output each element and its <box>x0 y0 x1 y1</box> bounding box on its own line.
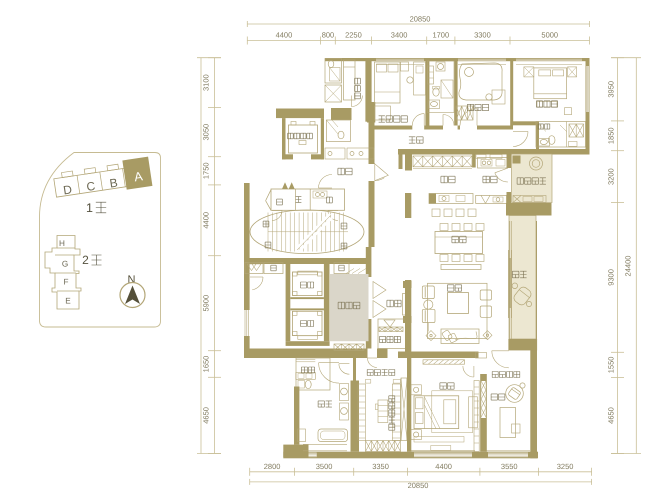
svg-text:9300: 9300 <box>607 269 616 286</box>
svg-text:F: F <box>63 278 68 287</box>
svg-text:3400: 3400 <box>391 31 408 40</box>
svg-text:4400: 4400 <box>435 462 452 471</box>
svg-text:800: 800 <box>322 31 335 40</box>
svg-text:2800: 2800 <box>264 462 281 471</box>
svg-text:3550: 3550 <box>501 462 518 471</box>
svg-text:2: 2 <box>82 253 89 267</box>
svg-text:3500: 3500 <box>316 462 333 471</box>
svg-text:G: G <box>62 260 68 269</box>
svg-text:3350: 3350 <box>372 462 389 471</box>
svg-text:H: H <box>59 239 65 248</box>
svg-text:1650: 1650 <box>202 356 211 373</box>
svg-text:3200: 3200 <box>607 168 616 185</box>
svg-text:2250: 2250 <box>345 31 362 40</box>
svg-text:4400: 4400 <box>202 212 211 229</box>
svg-text:1700: 1700 <box>432 31 449 40</box>
svg-text:5900: 5900 <box>202 295 211 312</box>
svg-text:3100: 3100 <box>202 74 211 91</box>
svg-text:1: 1 <box>86 201 93 215</box>
svg-text:N: N <box>128 274 136 286</box>
svg-text:3950: 3950 <box>607 81 616 98</box>
svg-text:1850: 1850 <box>607 127 616 144</box>
svg-text:3050: 3050 <box>202 124 211 141</box>
svg-text:1750: 1750 <box>202 162 211 179</box>
svg-text:3300: 3300 <box>474 31 491 40</box>
svg-text:24400: 24400 <box>624 256 633 277</box>
svg-text:20850: 20850 <box>408 481 429 490</box>
svg-text:5000: 5000 <box>541 31 558 40</box>
svg-text:3250: 3250 <box>557 462 574 471</box>
svg-text:4650: 4650 <box>202 407 211 424</box>
svg-text:E: E <box>65 297 71 306</box>
svg-text:1550: 1550 <box>607 357 616 374</box>
svg-text:4650: 4650 <box>607 407 616 424</box>
svg-text:4400: 4400 <box>276 31 293 40</box>
svg-text:20850: 20850 <box>410 15 431 24</box>
